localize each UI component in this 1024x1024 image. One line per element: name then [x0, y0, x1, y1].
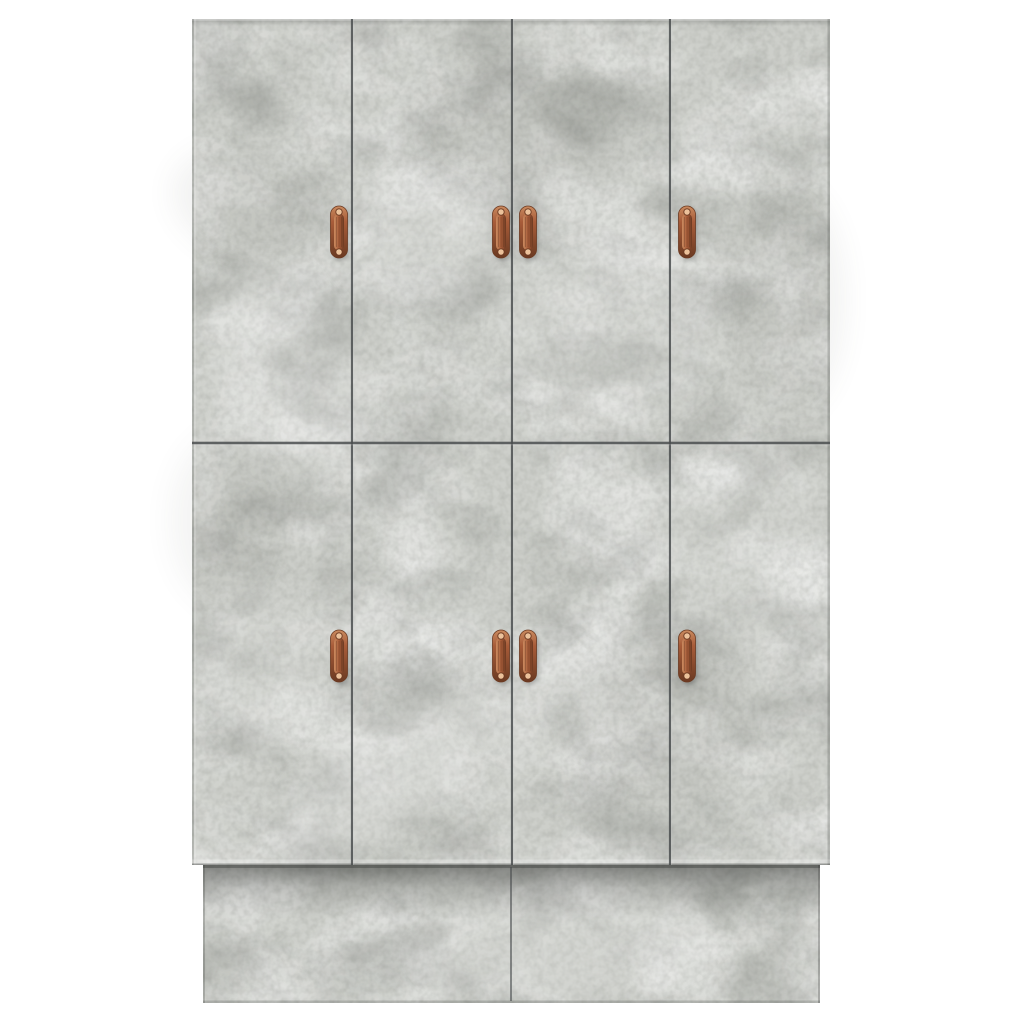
- handle-top-3: [520, 206, 539, 261]
- handle-top-4: [679, 206, 698, 261]
- handle-screw: [498, 249, 504, 255]
- handle-bottom-2: [493, 630, 512, 685]
- handle-screw: [498, 633, 504, 639]
- handle-screw: [684, 633, 690, 639]
- door-seam-horizontal: [192, 442, 830, 445]
- handle-screw: [684, 673, 690, 679]
- door-seam-horizontal-highlight: [192, 444, 830, 445]
- wardrobe: [157, 19, 845, 1010]
- handle-screw: [498, 673, 504, 679]
- handle-screw: [525, 209, 531, 215]
- handle-top-2: [493, 206, 512, 261]
- handle-screw: [336, 209, 342, 215]
- handle-bottom-1: [331, 630, 350, 685]
- handle-screw: [684, 209, 690, 215]
- handle-screw: [336, 249, 342, 255]
- concrete-dark-patch: [560, 630, 750, 800]
- handle-bottom-3: [520, 630, 539, 685]
- concrete-dark-patch: [170, 430, 290, 610]
- handle-top-1: [331, 206, 350, 261]
- handle-screw: [336, 673, 342, 679]
- plinth-left-edge: [203, 865, 205, 1003]
- handle-screw: [498, 209, 504, 215]
- plinth-center-seam: [510, 867, 512, 1001]
- handle-screw: [336, 633, 342, 639]
- concrete-dark-patch: [415, 60, 625, 190]
- handle-screw: [525, 633, 531, 639]
- handle-screw: [684, 249, 690, 255]
- product-photo-canvas: [0, 0, 1024, 1024]
- handle-screw: [525, 249, 531, 255]
- plinth-right-edge: [818, 865, 820, 1003]
- wardrobe-product-photo: [0, 0, 1024, 1024]
- handle-bottom-4: [679, 630, 698, 685]
- handle-screw: [525, 673, 531, 679]
